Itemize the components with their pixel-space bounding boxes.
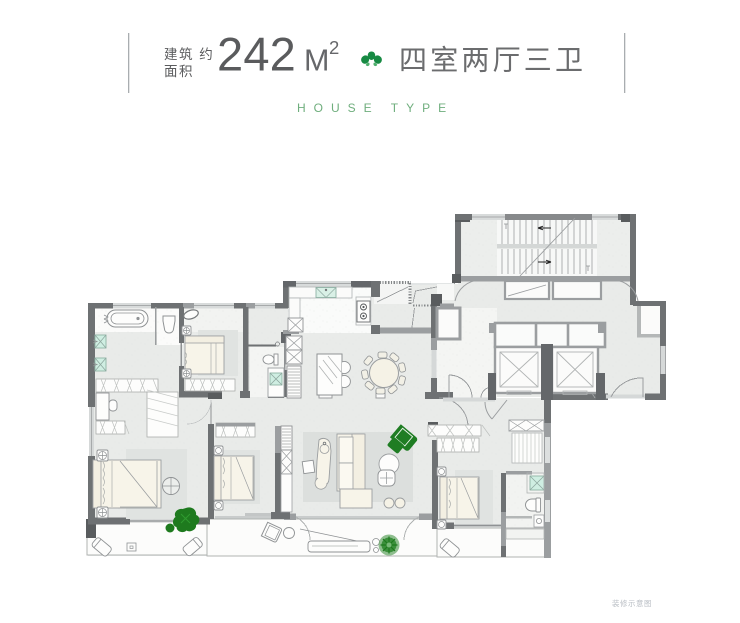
svg-text:HOUSE TYPE: HOUSE TYPE bbox=[297, 101, 454, 115]
svg-text:装修示意图: 装修示意图 bbox=[612, 599, 652, 608]
svg-text:2: 2 bbox=[329, 37, 339, 58]
svg-text:M: M bbox=[304, 44, 329, 78]
svg-text:面积: 面积 bbox=[164, 64, 194, 79]
svg-text:242: 242 bbox=[217, 28, 296, 81]
svg-text:建筑 约: 建筑 约 bbox=[164, 47, 214, 62]
svg-text:四室两厅三卫: 四室两厅三卫 bbox=[399, 45, 586, 76]
